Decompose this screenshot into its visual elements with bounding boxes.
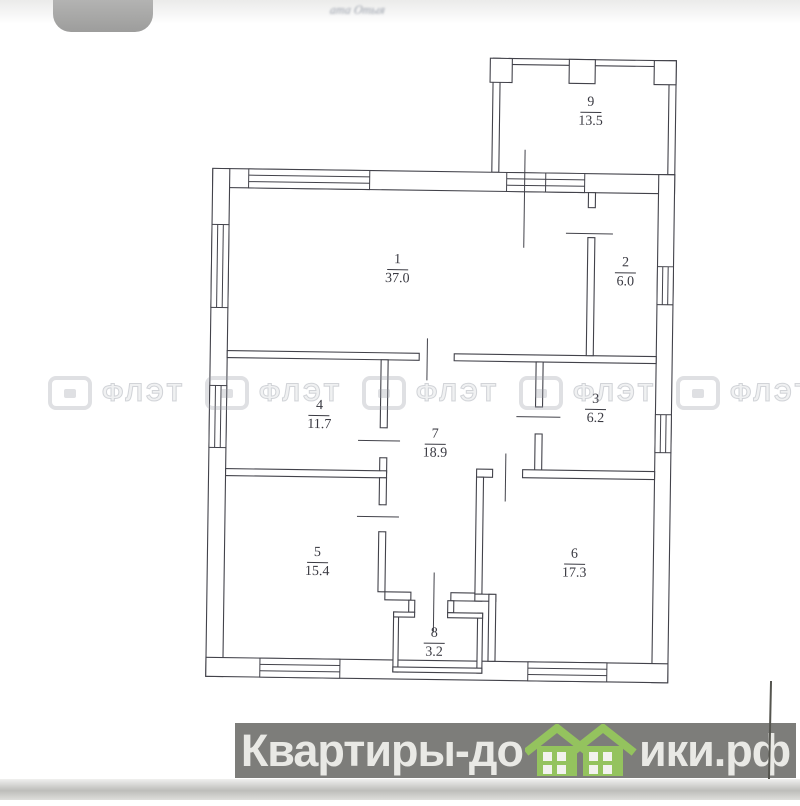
- room-label-8: 8 3.2: [423, 626, 444, 662]
- room-label-9: 9 13.5: [578, 95, 603, 131]
- room-label-1: 1 37.0: [385, 252, 410, 288]
- scanned-floor-plan-page: { "header": { "cutoff_text": "ата Отыя" …: [0, 0, 800, 800]
- room-label-5: 5 15.4: [305, 545, 330, 581]
- paper-bottom-shading: [0, 779, 800, 800]
- room-label-4: 4 11.7: [307, 398, 331, 434]
- site-watermark-bar: Квартиры-до ики.рф: [235, 723, 796, 778]
- green-houses-icon: [525, 724, 637, 778]
- room-label-7: 7 18.9: [422, 427, 447, 463]
- floor-plan-drawing: [0, 0, 800, 806]
- room-label-3: 3 6.2: [585, 392, 606, 428]
- site-watermark-text-left: Квартиры-до: [241, 725, 523, 777]
- room-label-2: 2 6.0: [615, 255, 636, 291]
- floor-plan: 1 37.0 2 6.0 3 6.2 4 11.7 5 15.4 6 17.3 …: [0, 0, 800, 806]
- room-label-6: 6 17.3: [562, 546, 587, 582]
